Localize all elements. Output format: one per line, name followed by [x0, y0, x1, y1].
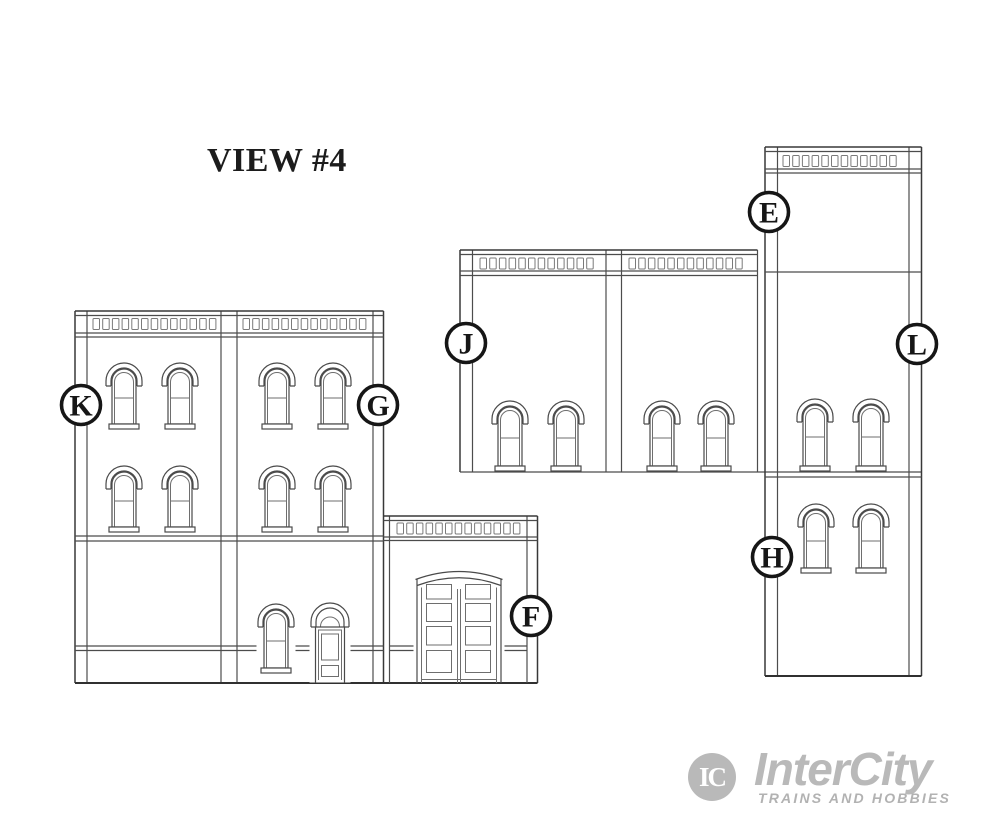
arch-window	[852, 502, 891, 574]
dentil-band	[629, 258, 742, 269]
dentil-band	[783, 156, 896, 167]
arch-window	[105, 361, 144, 430]
arch-window	[852, 397, 891, 472]
arch-window	[161, 361, 200, 430]
instruction-sheet: VIEW #4	[0, 0, 1000, 833]
svg-text:L: L	[907, 329, 927, 362]
part-label-j: J	[447, 324, 486, 363]
dentil-band	[243, 319, 366, 330]
arch-window	[643, 399, 682, 472]
svg-text:J: J	[459, 328, 474, 361]
arch-window	[105, 464, 144, 533]
arch-window	[547, 399, 586, 472]
arch-window	[797, 502, 836, 574]
ic-monogram-icon: IC	[688, 753, 736, 801]
dentil-band	[397, 523, 520, 534]
arch-window	[314, 464, 353, 533]
logo-tagline: TRAINS AND HOBBIES	[758, 790, 951, 806]
arch-window	[697, 399, 736, 472]
svg-text:G: G	[366, 390, 389, 423]
logo-brand-name: InterCity	[754, 746, 932, 792]
arch-window	[161, 464, 200, 533]
elevation-diagram: E F G H J K L	[0, 0, 1000, 833]
arch-window	[314, 361, 353, 430]
part-label-g: G	[359, 386, 398, 425]
part-label-f: F	[512, 597, 551, 636]
svg-text:H: H	[760, 542, 783, 575]
arch-window	[258, 361, 297, 430]
wall-tower	[765, 147, 922, 676]
svg-text:K: K	[69, 390, 93, 423]
garage-door	[414, 561, 505, 683]
arch-window	[796, 397, 835, 472]
svg-text:F: F	[522, 601, 540, 634]
arch-window	[257, 602, 296, 674]
part-label-l: L	[898, 325, 937, 364]
svg-text:E: E	[759, 197, 779, 230]
entry-door	[310, 602, 351, 683]
part-label-e: E	[750, 193, 789, 232]
intercity-logo: IC InterCity TRAINS AND HOBBIES	[688, 746, 978, 816]
part-label-k: K	[62, 386, 101, 425]
dentil-band	[480, 258, 593, 269]
dentil-band	[93, 319, 216, 330]
view-title: VIEW #4	[207, 142, 347, 180]
arch-window	[491, 399, 530, 472]
part-label-h: H	[753, 538, 792, 577]
arch-window	[258, 464, 297, 533]
